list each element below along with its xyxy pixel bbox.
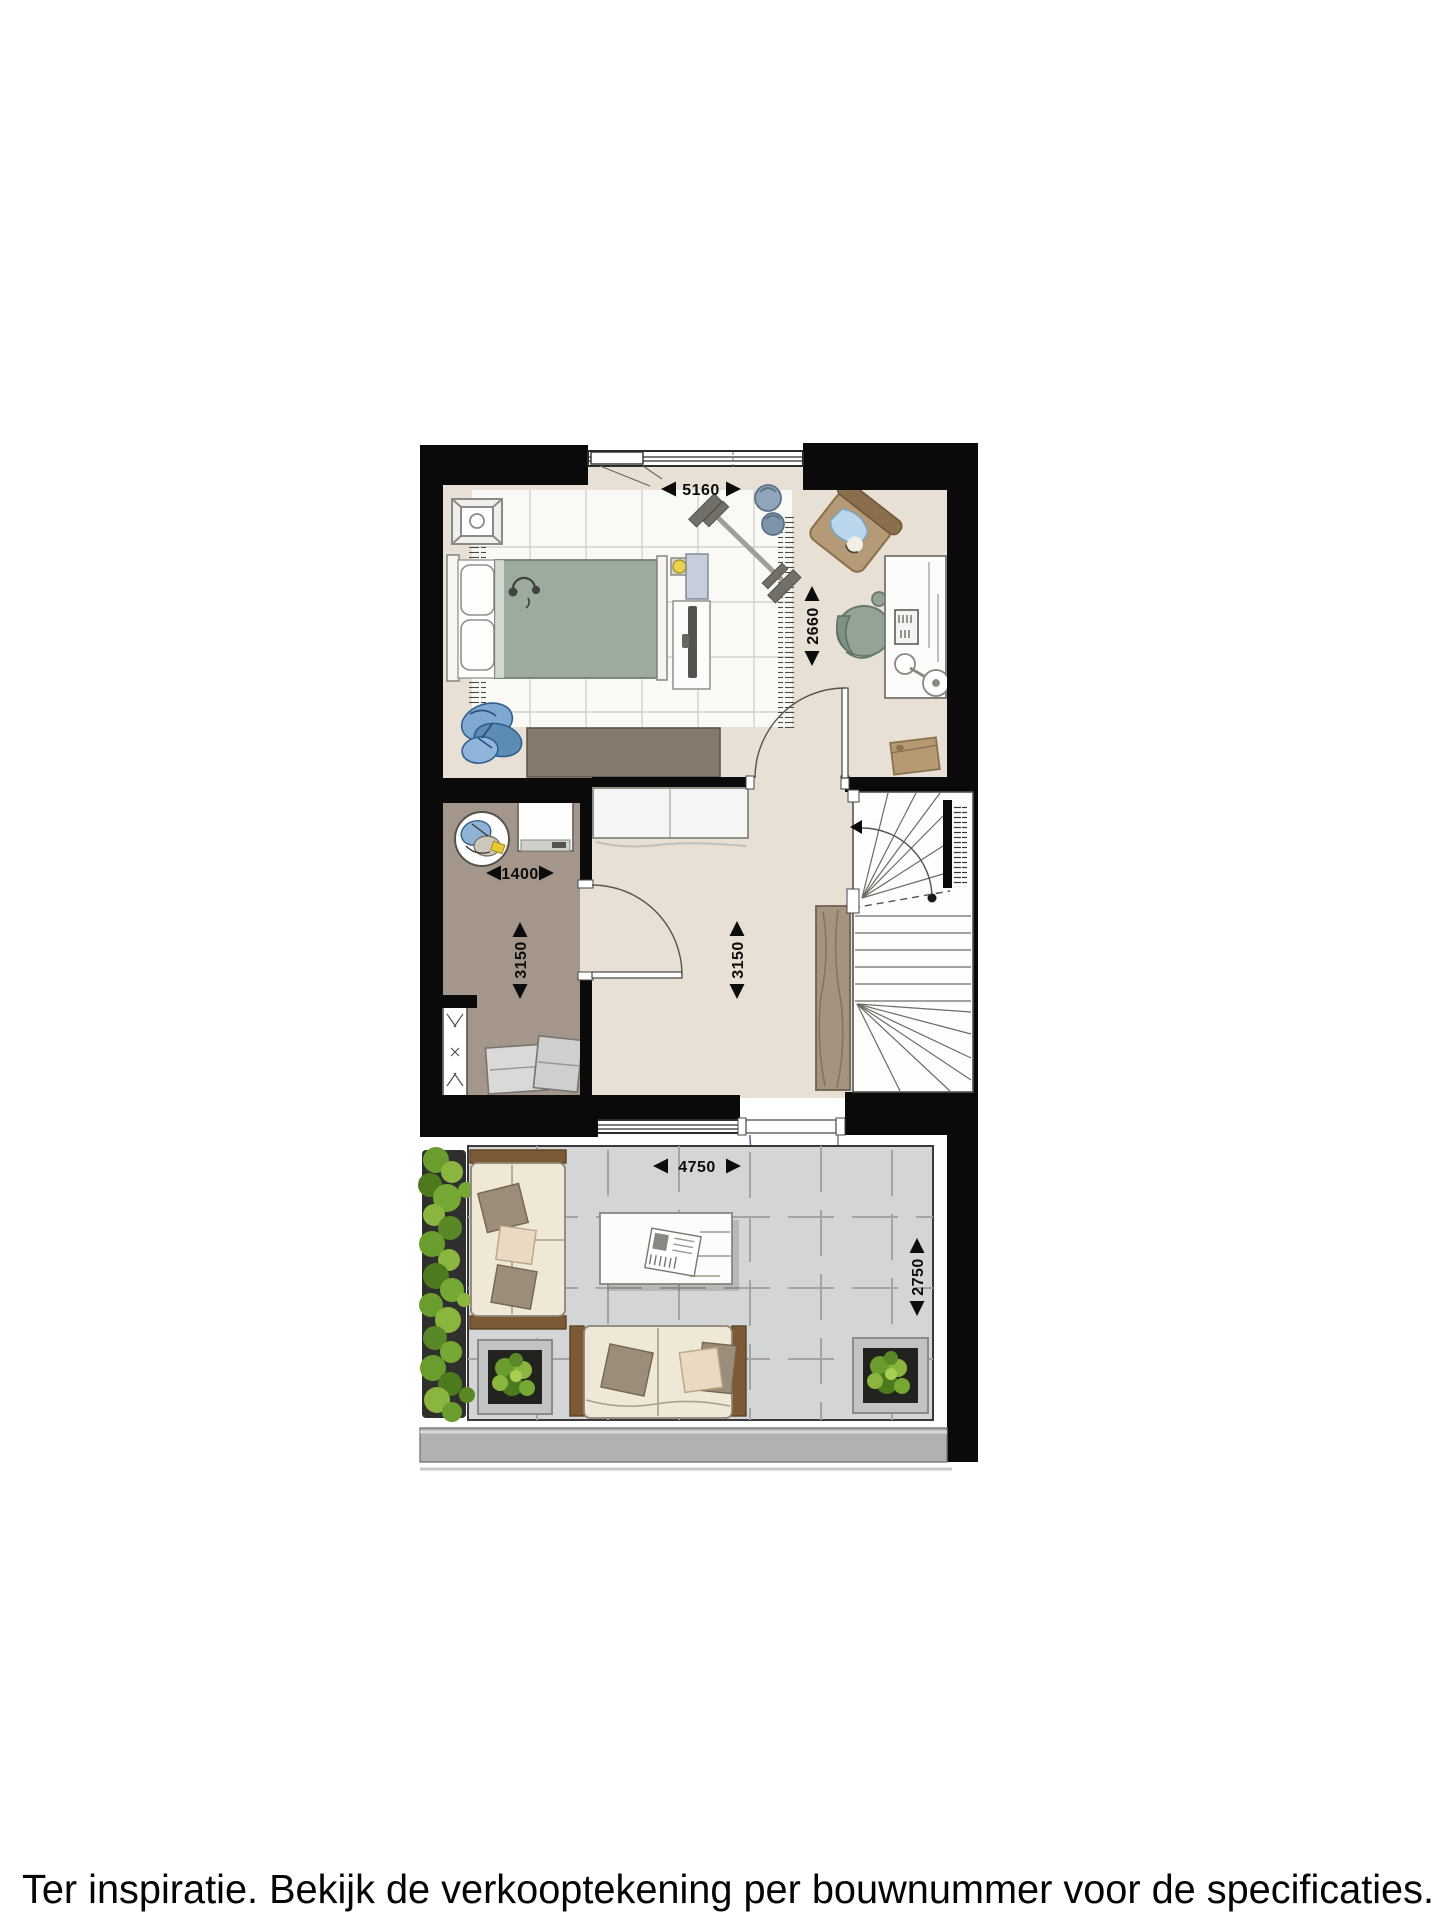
door-jamb (578, 880, 593, 888)
doormat (890, 737, 940, 774)
bed-headboard (447, 555, 459, 681)
wall-bottom-left-block (420, 1095, 598, 1137)
dim-label: 2660 (805, 607, 822, 645)
staircase (847, 790, 973, 1092)
throw-pillow (491, 1265, 537, 1309)
sofa-left (470, 1150, 566, 1329)
table-lamp-icon (673, 560, 686, 573)
door-leaf (842, 688, 848, 778)
wall-bedroom-storage (443, 778, 592, 803)
door-jamb (836, 1118, 845, 1135)
dim-label: 2750 (910, 1258, 927, 1296)
bed-footboard (657, 556, 667, 680)
dim-label: 1400 (501, 866, 539, 883)
laundry-basket (455, 812, 509, 866)
door-jamb (746, 776, 754, 789)
hedge (418, 1147, 475, 1422)
throw-pillow (679, 1348, 722, 1393)
desk (885, 556, 949, 698)
wall-bedroom-hall-right (845, 777, 978, 792)
bed-bench (527, 728, 720, 777)
wall-right-bedroom (947, 443, 978, 792)
window-terrace (598, 1119, 740, 1134)
door-jamb (578, 972, 593, 980)
throw-pillow (601, 1344, 653, 1396)
sofa-frame (470, 1316, 566, 1329)
balustrade (420, 1428, 952, 1469)
sofa-bottom (570, 1326, 746, 1418)
desk-organizer-icon (895, 610, 918, 644)
bed-pillow (461, 565, 494, 615)
newspaper-icon (645, 1228, 701, 1276)
door-jamb (738, 1118, 746, 1135)
rug-fringe-right (778, 514, 794, 728)
wall-top-left (420, 445, 588, 485)
wall-above-terrace-window (598, 1095, 740, 1119)
wall-left-lower (420, 1008, 442, 1098)
floorplan-drawing: 5160 2660 1400 3150 3150 4750 2750 Ter i… (0, 0, 1440, 1920)
vent-window (591, 452, 643, 464)
dim-label: 3150 (730, 941, 747, 979)
planter-right (853, 1338, 928, 1413)
dim-label: 3150 (513, 941, 530, 979)
bed-duvet (495, 560, 657, 678)
wall-bedroom-hall-left (592, 777, 750, 787)
wall-terrace-right-block (845, 1092, 947, 1135)
wall-storage-hall-lower (580, 975, 592, 1098)
door-leaf-closed (746, 1120, 836, 1133)
sofa-frame (470, 1150, 566, 1163)
chair-headrest (872, 592, 886, 606)
sideboard (593, 788, 748, 846)
dim-label: 5160 (682, 482, 720, 499)
throw-pillow (496, 1226, 536, 1265)
stair-hatch (954, 805, 967, 887)
terrace (418, 1146, 952, 1469)
ceiling-lamp-icon (452, 499, 502, 544)
duvet-fold (495, 560, 504, 678)
nightstand-top (686, 554, 708, 599)
bed (447, 555, 667, 681)
coffee-table (600, 1213, 739, 1291)
caption: Ter inspiratie. Bekijk de verkooptekenin… (22, 1866, 1434, 1912)
tv-icon (688, 606, 697, 678)
tall-cabinet (816, 906, 850, 1090)
bed-pillow (461, 620, 494, 670)
dim-label: 4750 (678, 1159, 716, 1176)
wall-storage-hall-upper (580, 803, 592, 888)
wall-right-terrace (947, 1092, 978, 1462)
tv-board (673, 601, 710, 689)
planter-left (478, 1340, 552, 1414)
wall-left-notch (420, 995, 477, 1008)
floorplan-page: 5160 2660 1400 3150 3150 4750 2750 Ter i… (0, 0, 1440, 1920)
sofa-armrest (570, 1326, 584, 1416)
wall-left (420, 445, 443, 995)
door-leaf (592, 972, 682, 978)
radiator (443, 1006, 467, 1096)
